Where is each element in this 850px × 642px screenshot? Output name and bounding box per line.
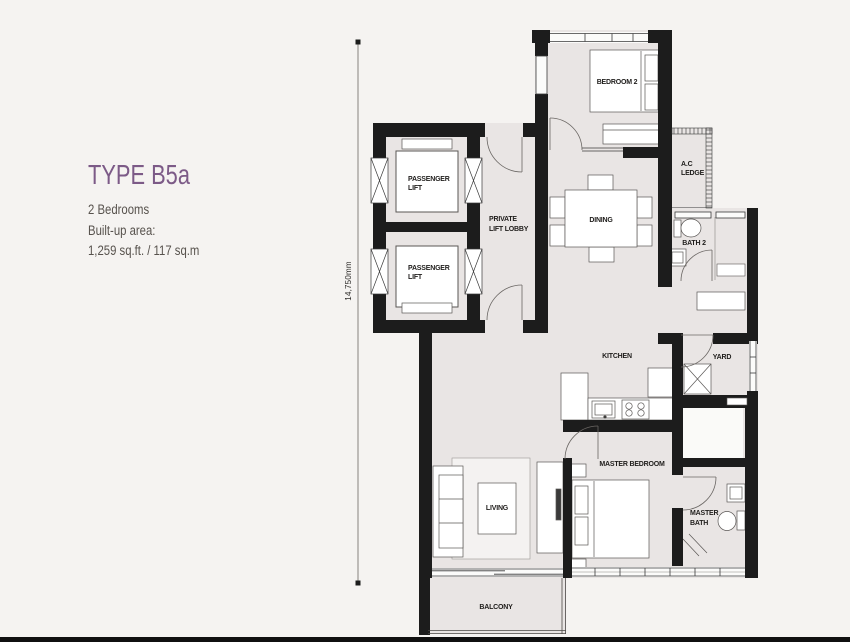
label-living: LIVING [486, 505, 509, 512]
label-lift1-b: LIFT [408, 185, 423, 192]
label-bath2: BATH 2 [682, 240, 706, 247]
bedroom2-window [550, 32, 648, 43]
living-sofa [433, 466, 463, 557]
floorplan-drawing: 14,750mm BEDROOM 2 A.C LEDGE PASSENGER L… [0, 0, 850, 642]
label-bedroom2: BEDROOM 2 [597, 79, 638, 86]
void-area [683, 408, 743, 458]
bedroom2-side-window [536, 56, 547, 94]
page-bottom-bar [0, 637, 850, 642]
dimension-line: 14,750mm [344, 40, 361, 586]
label-yard: YARD [713, 354, 732, 361]
label-lift2-a: PASSENGER [408, 265, 450, 272]
label-lift1-a: PASSENGER [408, 176, 450, 183]
label-lift2-b: LIFT [408, 274, 423, 281]
master-bed [567, 464, 649, 572]
label-master-bath-1: MASTER [690, 510, 719, 517]
yard-window [749, 341, 757, 391]
bedroom2-wardrobe [603, 124, 662, 144]
corridor-cabinet [697, 292, 745, 310]
label-master-bedroom: MASTER BEDROOM [599, 461, 665, 468]
label-kitchen: KITCHEN [602, 353, 632, 360]
label-master-bath-2: BATH [690, 520, 708, 527]
label-ac-2: LEDGE [681, 170, 705, 177]
label-ac-1: A.C [681, 161, 693, 168]
yard-washer [684, 364, 711, 394]
floorplan-page: TYPE B5a 2 Bedrooms Built-up area: 1,259… [0, 0, 850, 642]
balcony-sliding-door [432, 568, 563, 577]
tv-console [537, 462, 563, 553]
label-lobby-1: PRIVATE [489, 216, 517, 223]
label-lobby-2: LIFT LOBBY [489, 226, 529, 233]
label-dining: DINING [589, 217, 613, 224]
dimension-label: 14,750mm [344, 261, 353, 301]
bath2-window [675, 212, 745, 218]
master-window-band [572, 567, 745, 577]
label-balcony: BALCONY [479, 604, 513, 611]
